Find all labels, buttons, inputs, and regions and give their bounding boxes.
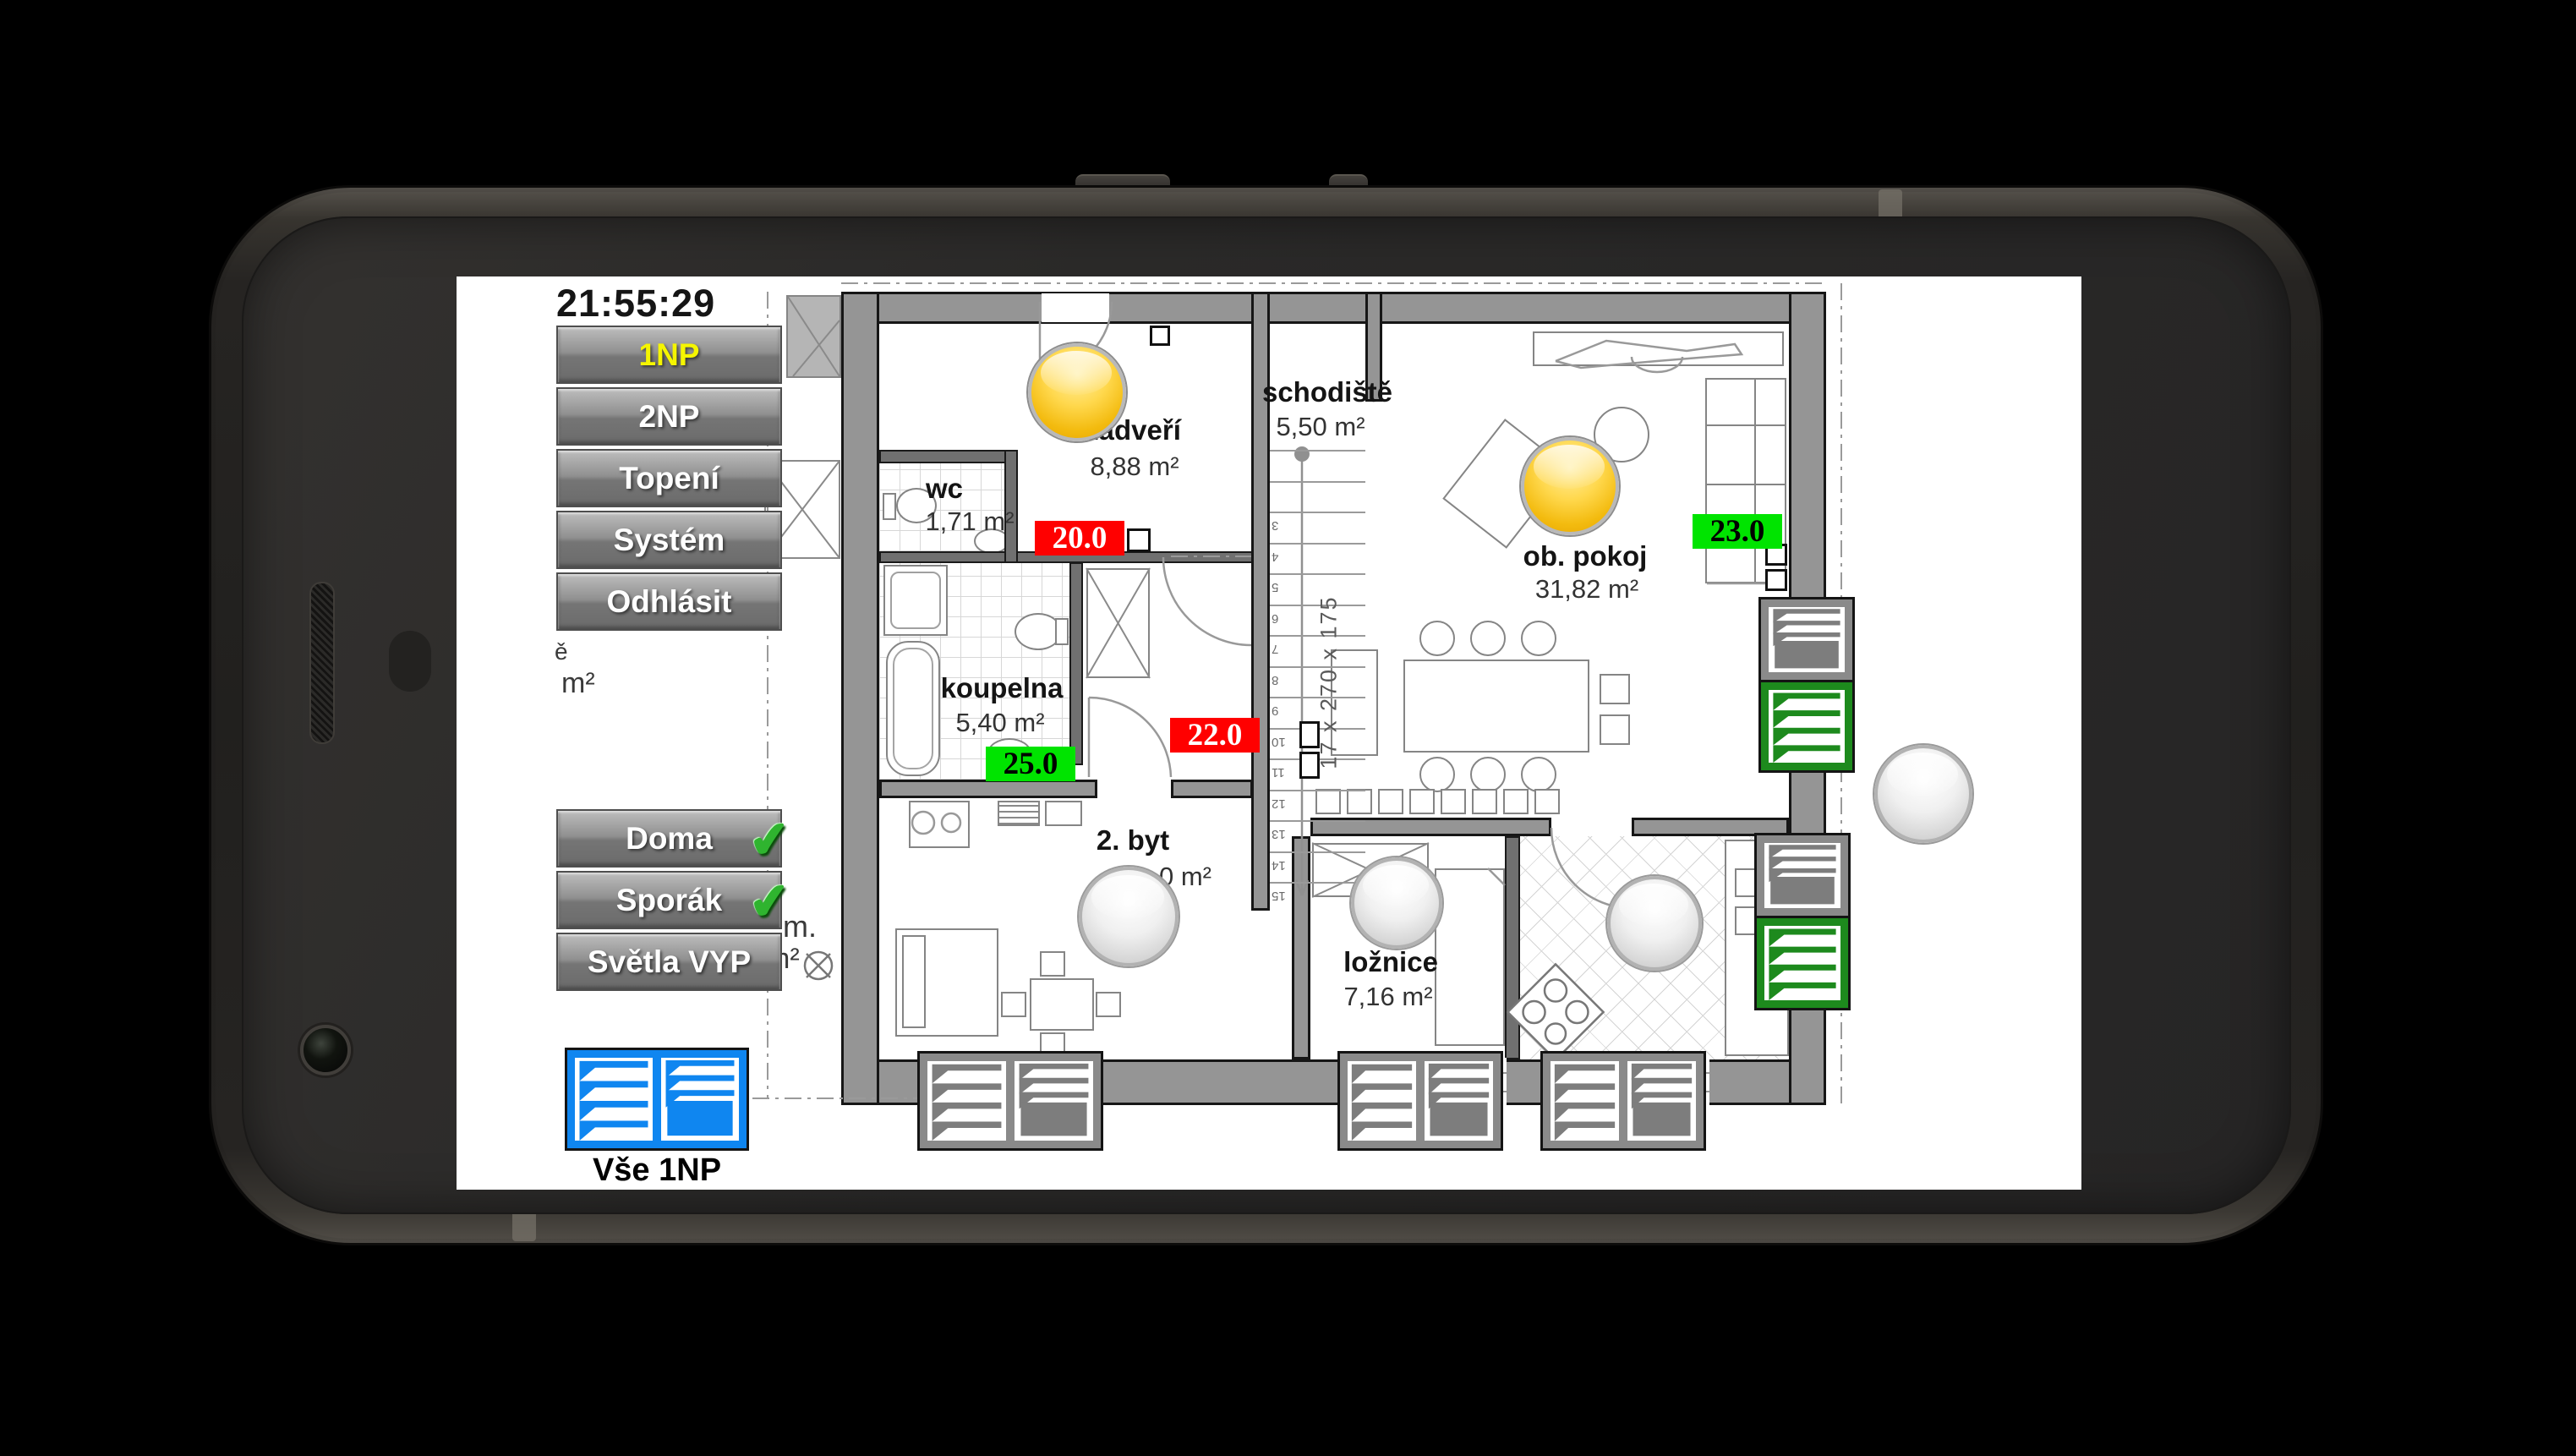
light-on-ob-pokoj[interactable] [1521, 437, 1619, 535]
nav-label: 1NP [639, 337, 700, 373]
stair-tread [1270, 820, 1365, 822]
check-icon: ✔ [747, 809, 793, 871]
stove-icon [1507, 964, 1603, 1059]
door-post [1765, 569, 1787, 591]
stair-tread [1270, 882, 1365, 884]
nav-button-topeni[interactable]: Topení [556, 449, 782, 507]
nav-button-system[interactable]: Systém [556, 511, 782, 569]
room-label-koupelna: koupelna [941, 672, 1064, 704]
stair-tread [1270, 543, 1365, 545]
door-post [1127, 528, 1151, 552]
blind-group-byt2[interactable] [917, 1051, 1103, 1151]
nav-label: Systém [614, 523, 725, 558]
stair-number: 9 [1272, 703, 1278, 718]
stair-tread [1270, 573, 1365, 575]
blind-open-icon [575, 1058, 653, 1141]
door-post [1150, 326, 1170, 346]
blind-open-icon [1551, 1061, 1619, 1141]
stair-number: 6 [1272, 611, 1278, 626]
stair-number: 14 [1272, 858, 1286, 873]
blind-button-living-open[interactable] [1758, 680, 1855, 773]
blind-open-icon [1769, 690, 1845, 763]
blind-button-kitchen-open[interactable] [1754, 916, 1851, 1010]
blind-closed-icon [661, 1058, 739, 1141]
blind-group-loznice[interactable] [1337, 1051, 1503, 1151]
stair-tread [1270, 512, 1365, 513]
nav-button-2np[interactable]: 2NP [556, 387, 782, 446]
blind-open-icon [927, 1061, 1006, 1141]
all-blinds-button[interactable] [565, 1048, 749, 1151]
proximity-sensor [389, 631, 431, 692]
room-label-loznice: ložnice [1343, 946, 1438, 978]
nav-label: Odhlásit [606, 584, 731, 620]
light-off-loznice[interactable] [1351, 857, 1442, 949]
home-automation-app: 3456789101112131415 17 x 270 x 175 zádve… [457, 276, 2081, 1190]
stair-number: 7 [1272, 642, 1278, 656]
floor-nav: 1NP 2NP Topení Systém Odhlásit [556, 326, 782, 631]
stair-number: 3 [1272, 518, 1278, 533]
covered-text-fragment: ě [555, 638, 568, 665]
svetla-label: Světla VYP [588, 944, 751, 980]
stair-number: 13 [1272, 827, 1286, 841]
svetla-vyp-button[interactable]: Světla VYP [556, 933, 782, 991]
nav-label: 2NP [639, 399, 700, 435]
all-blinds-label: Vše 1NP [565, 1152, 749, 1189]
room-label-ob-pokoj: ob. pokoj [1523, 540, 1648, 572]
stair-tread [1270, 450, 1365, 452]
blind-open-icon [1764, 926, 1840, 1000]
ceiling-lamp-icon [805, 952, 832, 979]
blind-closed-icon [1627, 1061, 1696, 1141]
blind-closed-icon [1425, 1061, 1493, 1141]
quick-actions: Doma ✔ Sporák ✔ Světla VYP [556, 809, 782, 991]
blind-button-living-closed[interactable] [1758, 597, 1855, 682]
temp-badge-chodba[interactable]: 22.0 [1170, 718, 1260, 753]
room-label-wc: wc [926, 473, 963, 505]
stair-number: 11 [1272, 765, 1285, 780]
doma-label: Doma [626, 821, 713, 857]
room-area-loznice: 7,16 m² [1343, 982, 1432, 1012]
stair-tread [1270, 481, 1365, 483]
stair-tread [1270, 851, 1365, 853]
earpiece-speaker-icon [309, 582, 335, 744]
room-area-ob-pokoj: 31,82 m² [1535, 574, 1638, 605]
room-area-zadveri: 8,88 m² [1090, 452, 1179, 482]
temp-badge-koupelna[interactable]: 25.0 [986, 747, 1075, 781]
front-camera-icon [300, 1025, 351, 1076]
nav-label: Topení [619, 461, 719, 496]
temp-badge-wc[interactable]: 20.0 [1035, 521, 1124, 556]
stair-number: 4 [1272, 550, 1278, 564]
room-area-schodiste: 5,50 m² [1276, 412, 1365, 442]
light-on-zadveri[interactable] [1028, 343, 1126, 441]
blind-closed-icon [1769, 607, 1845, 672]
stair-tread [1270, 790, 1365, 791]
temp-badge-ob-pokoj[interactable]: 23.0 [1693, 514, 1782, 549]
stair-number: 12 [1272, 796, 1286, 811]
blind-button-kitchen-closed[interactable] [1754, 833, 1851, 918]
room-area-wc: 1,71 m² [925, 506, 1014, 537]
nav-button-1np[interactable]: 1NP [556, 326, 782, 384]
blind-open-icon [1348, 1061, 1416, 1141]
light-off-byt2[interactable] [1079, 867, 1179, 966]
blind-closed-icon [1015, 1061, 1093, 1141]
check-icon: ✔ [747, 871, 793, 933]
blind-closed-icon [1764, 843, 1840, 908]
light-off-terasa[interactable] [1874, 745, 1972, 843]
door-post [1299, 721, 1320, 748]
stair-number: 15 [1272, 889, 1286, 903]
blind-group-kuchyn[interactable] [1540, 1051, 1706, 1151]
sporak-label: Sporák [616, 883, 722, 918]
door-post [1299, 752, 1320, 779]
covered-text-fragment: m² [561, 667, 595, 700]
stair-number: 5 [1272, 580, 1278, 594]
stair-number: 8 [1272, 673, 1278, 687]
light-off-kuchyn[interactable] [1607, 876, 1702, 971]
stair-number: 10 [1272, 735, 1286, 749]
nav-button-odhlasit[interactable]: Odhlásit [556, 572, 782, 631]
clock: 21:55:29 [556, 282, 715, 326]
room-label-schodiste: schodiště [1262, 376, 1392, 408]
room-label-byt2: 2. byt [1097, 824, 1169, 857]
sporak-button[interactable]: Sporák ✔ [556, 871, 782, 929]
room-area-koupelna: 5,40 m² [955, 708, 1044, 738]
stairs-dimension-label: 17 x 270 x 175 [1316, 595, 1343, 769]
doma-button[interactable]: Doma ✔ [556, 809, 782, 868]
